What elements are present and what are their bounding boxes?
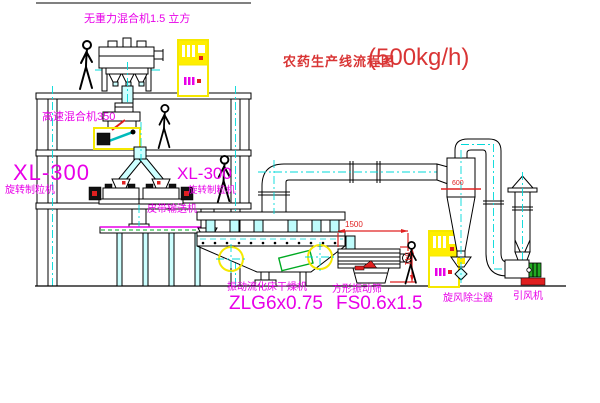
label-dryer-name: 振动流化床干燥机 bbox=[227, 283, 307, 293]
label-granulator-left-model: XL-300 bbox=[13, 162, 90, 184]
flow-diagram-canvas: 农药生产线流程图 (500kg/h) 无重力混合机1.5 立方 高速混合机350… bbox=[0, 0, 600, 403]
person-second-floor bbox=[159, 105, 170, 148]
dimension-cyclone-inlet: 600 bbox=[452, 180, 464, 187]
label-belt-conveyor: 皮带输送机 bbox=[147, 205, 197, 215]
label-dryer-model: ZLG6x0.75 bbox=[229, 294, 323, 313]
fluid-bed-dryer bbox=[197, 212, 345, 286]
label-fan: 引风机 bbox=[513, 292, 543, 302]
square-vibrating-sieve bbox=[338, 236, 412, 283]
label-cyclone: 旋风除尘器 bbox=[443, 294, 493, 304]
induced-draft-fan bbox=[505, 260, 545, 285]
label-high-speed-mixer: 高速混合机350 bbox=[42, 112, 115, 123]
granulator-left bbox=[89, 179, 143, 204]
belt-conveyor bbox=[100, 227, 204, 286]
person-top-floor bbox=[80, 41, 92, 89]
label-gravity-free-mixer: 无重力混合机1.5 立方 bbox=[84, 14, 190, 25]
control-cabinet-upper bbox=[178, 40, 208, 96]
dimension-sieve-length: 1500 bbox=[345, 221, 363, 229]
diagram-capacity: (500kg/h) bbox=[368, 46, 469, 70]
label-granulator-right-name: 旋转制粒机 bbox=[188, 186, 236, 196]
gravity-free-mixer bbox=[95, 38, 163, 91]
label-sieve-model: FS0.6x1.5 bbox=[336, 294, 423, 313]
exhaust-duct bbox=[258, 160, 448, 214]
label-granulator-left-name: 旋转制粒机 bbox=[5, 186, 55, 196]
dimension-sieve-height: 541 bbox=[403, 252, 411, 265]
high-speed-mixer bbox=[94, 103, 140, 149]
label-granulator-right-model: XL-300 bbox=[177, 165, 232, 182]
